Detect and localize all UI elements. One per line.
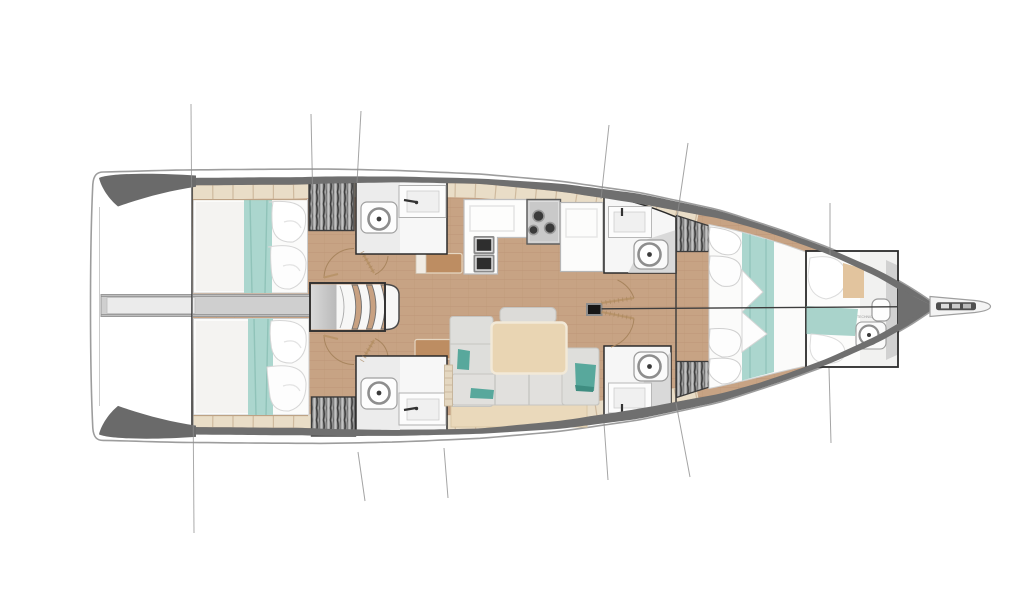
svg-text:TECHNIC: TECHNIC — [857, 315, 873, 319]
